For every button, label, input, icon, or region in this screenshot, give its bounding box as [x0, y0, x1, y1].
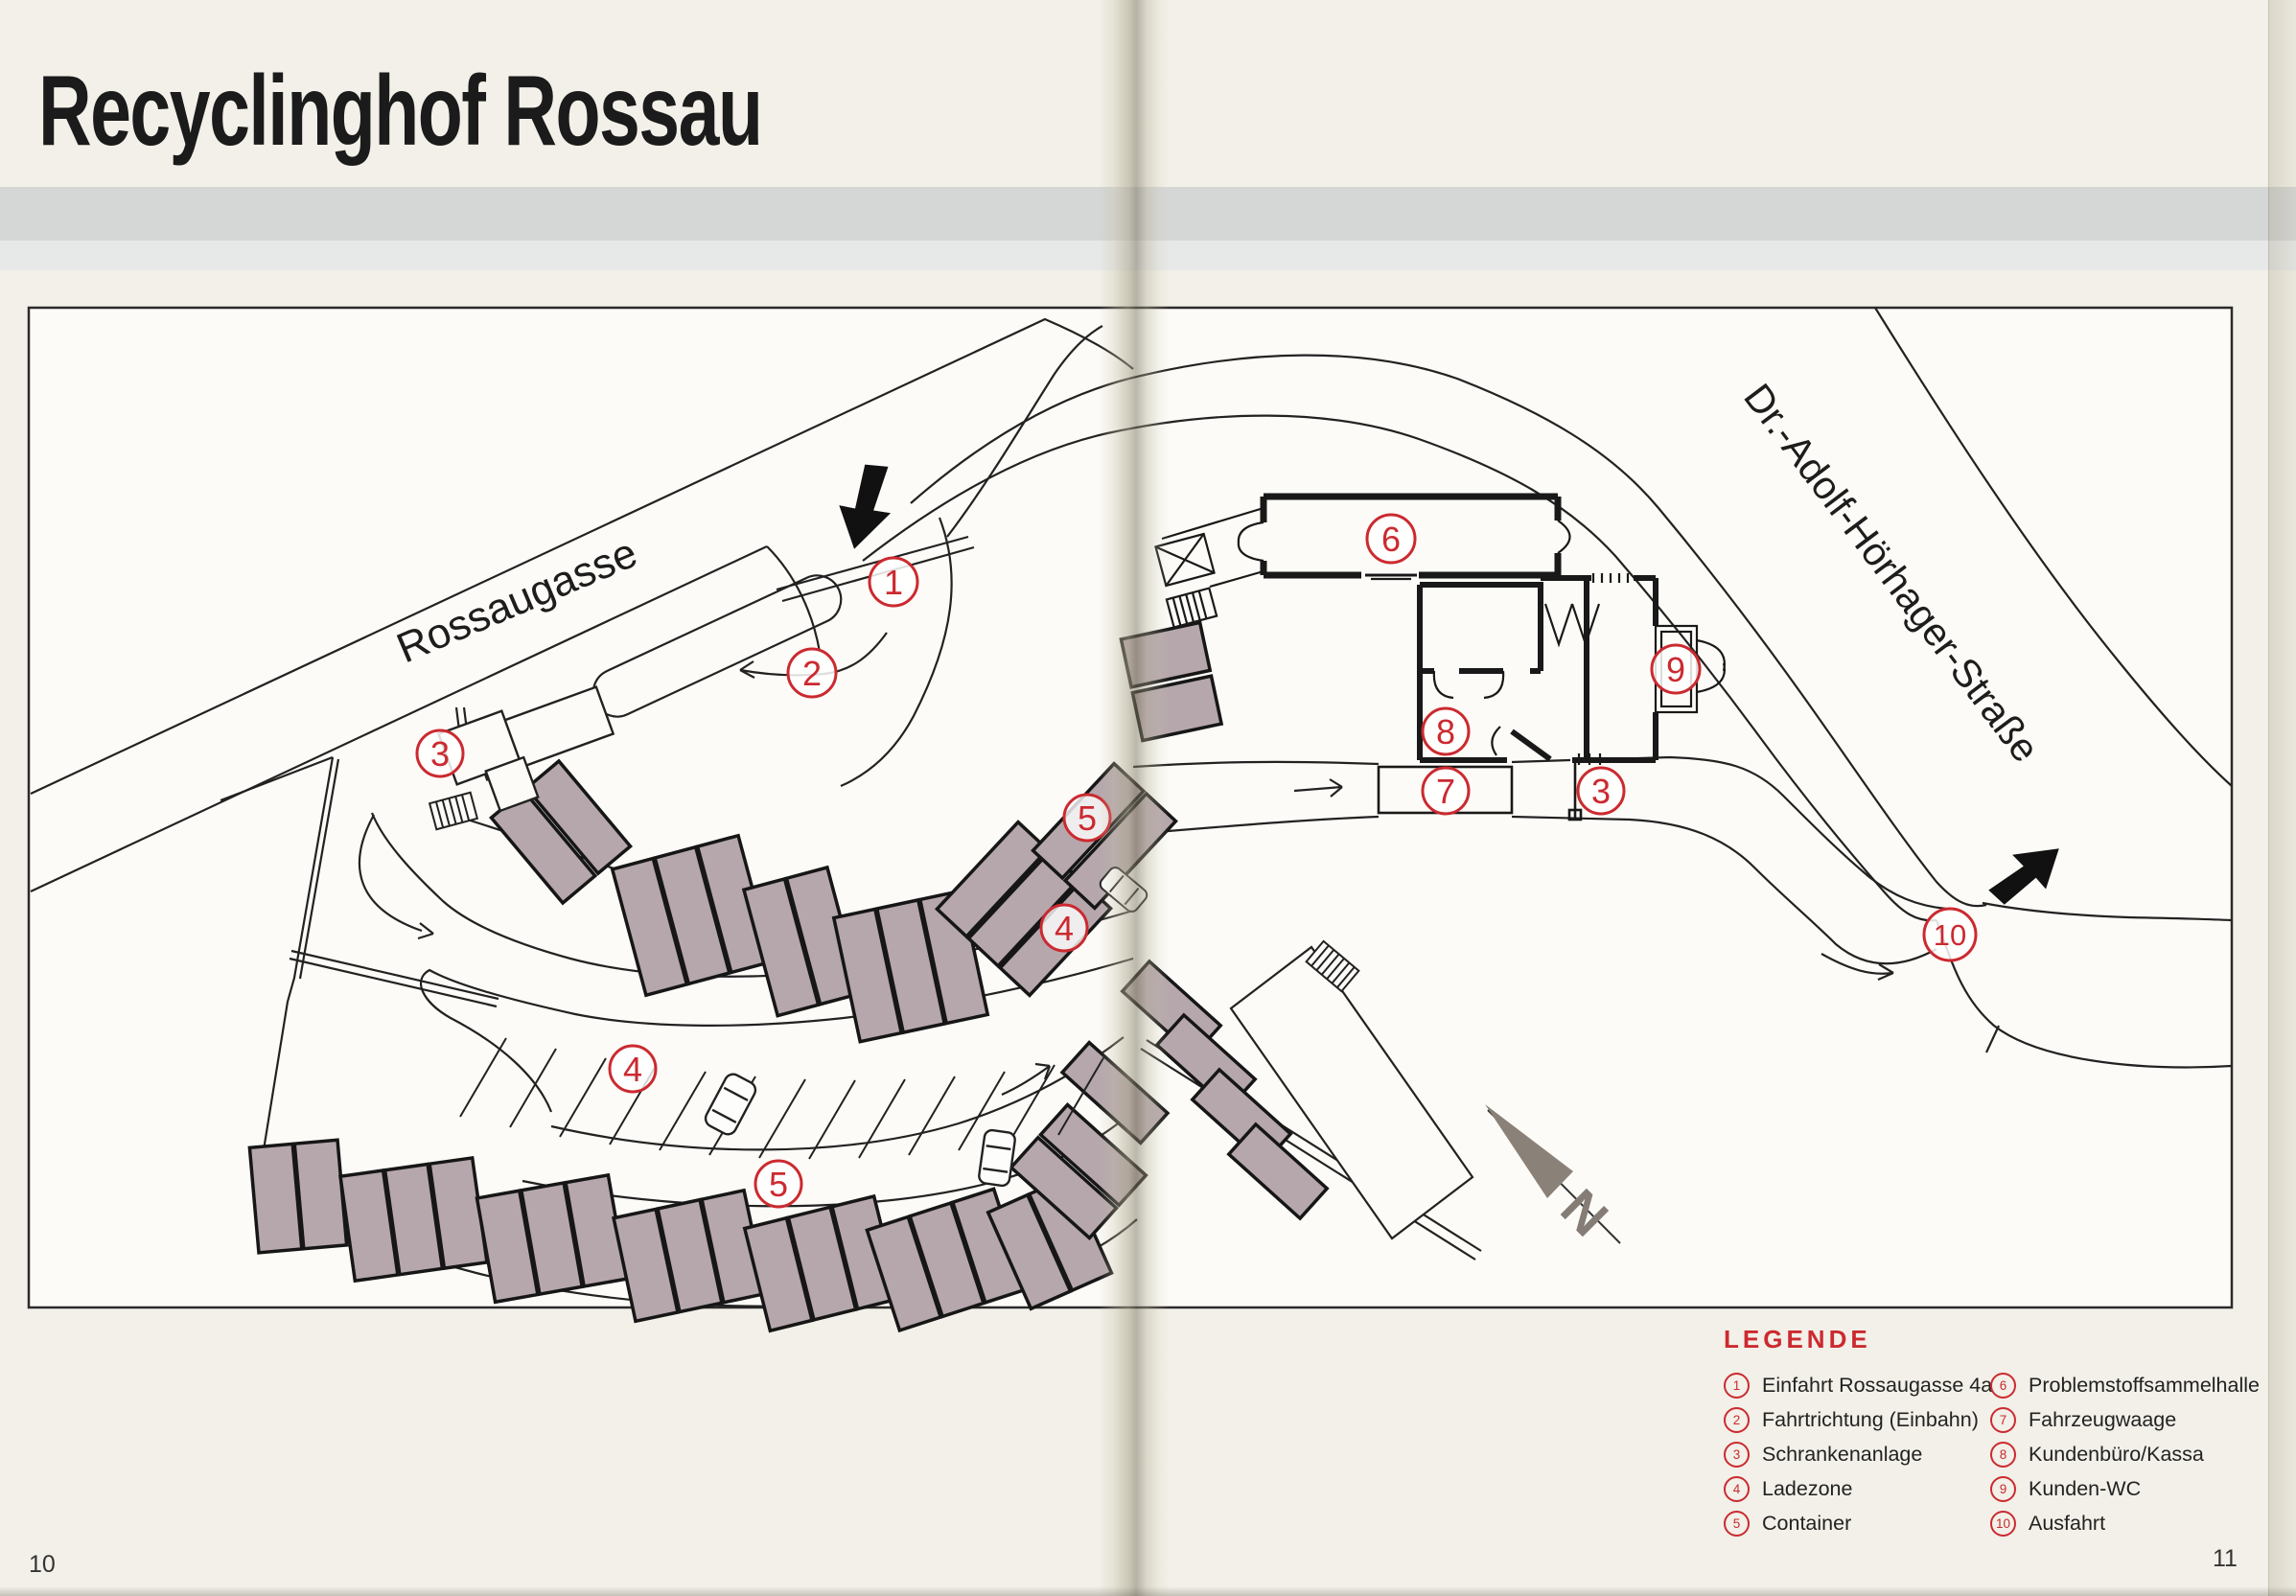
legend-item-label: Problemstoffsammelhalle — [2029, 1374, 2260, 1398]
legend-item-8: 8Kundenbüro/Kassa — [1990, 1437, 2261, 1471]
legend-item-label: Ausfahrt — [2029, 1512, 2105, 1536]
legend-number-circle: 10 — [1990, 1511, 2016, 1537]
legend-number-circle: 3 — [1724, 1442, 1750, 1468]
legend-item-label: Schrankenanlage — [1762, 1443, 1922, 1467]
legend-item-5: 5Container — [1724, 1506, 1990, 1540]
marker-3b: 3 — [1578, 768, 1624, 814]
svg-text:9: 9 — [1666, 650, 1685, 689]
legend-item-1: 1Einfahrt Rossaugasse 4a — [1724, 1368, 1990, 1402]
marker-4a: 4 — [1041, 905, 1087, 951]
marker-4b: 4 — [610, 1046, 656, 1092]
svg-text:4: 4 — [623, 1050, 642, 1089]
marker-7: 7 — [1423, 768, 1469, 814]
page-number-left: 10 — [29, 1551, 56, 1579]
marker-3a: 3 — [417, 730, 463, 776]
legend-column-2: 6Problemstoffsammelhalle 7Fahrzeugwaage … — [1990, 1368, 2261, 1540]
legend-item-label: Container — [1762, 1512, 1851, 1536]
legend-item-10: 10Ausfahrt — [1990, 1506, 2261, 1540]
legend-number-circle: 8 — [1990, 1442, 2016, 1468]
legend-number-circle: 5 — [1724, 1511, 1750, 1537]
legend-item-label: Einfahrt Rossaugasse 4a — [1762, 1374, 1992, 1398]
legend-number-circle: 1 — [1724, 1373, 1750, 1399]
svg-text:2: 2 — [802, 654, 822, 693]
legend-item-7: 7Fahrzeugwaage — [1990, 1402, 2261, 1437]
marker-8: 8 — [1423, 708, 1469, 754]
marker-1: 1 — [870, 558, 917, 606]
svg-text:5: 5 — [769, 1165, 788, 1204]
marker-2: 2 — [788, 649, 836, 697]
svg-text:4: 4 — [1055, 909, 1074, 948]
marker-10: 10 — [1924, 909, 1976, 960]
legend-item-label: Fahrtrichtung (Einbahn) — [1762, 1408, 1979, 1432]
legend: LEGENDE 1Einfahrt Rossaugasse 4a 2Fahrtr… — [1724, 1325, 2261, 1540]
marker-9: 9 — [1652, 645, 1700, 693]
legend-number-circle: 7 — [1990, 1407, 2016, 1433]
legend-number-circle: 4 — [1724, 1476, 1750, 1502]
legend-item-label: Ladezone — [1762, 1477, 1852, 1501]
legend-heading: LEGENDE — [1724, 1325, 2261, 1354]
page-number-right: 11 — [2213, 1545, 2238, 1573]
svg-text:8: 8 — [1436, 712, 1455, 752]
marker-5b: 5 — [755, 1161, 801, 1207]
svg-text:3: 3 — [1591, 772, 1611, 811]
legend-item-6: 6Problemstoffsammelhalle — [1990, 1368, 2261, 1402]
legend-item-label: Kundenbüro/Kassa — [2029, 1443, 2204, 1467]
svg-text:7: 7 — [1436, 772, 1455, 811]
legend-number-circle: 9 — [1990, 1476, 2016, 1502]
legend-item-label: Kunden-WC — [2029, 1477, 2141, 1501]
legend-item-4: 4Ladezone — [1724, 1471, 1990, 1506]
legend-item-2: 2Fahrtrichtung (Einbahn) — [1724, 1402, 1990, 1437]
legend-number-circle: 2 — [1724, 1407, 1750, 1433]
svg-text:10: 10 — [1934, 918, 1966, 952]
legend-item-3: 3Schrankenanlage — [1724, 1437, 1990, 1471]
svg-text:3: 3 — [430, 734, 450, 774]
svg-text:6: 6 — [1381, 520, 1401, 559]
svg-text:5: 5 — [1078, 798, 1097, 838]
legend-item-label: Fahrzeugwaage — [2029, 1408, 2176, 1432]
svg-text:1: 1 — [884, 563, 903, 602]
marker-5a: 5 — [1064, 795, 1110, 841]
legend-column-1: 1Einfahrt Rossaugasse 4a 2Fahrtrichtung … — [1724, 1368, 1990, 1540]
legend-columns: 1Einfahrt Rossaugasse 4a 2Fahrtrichtung … — [1724, 1368, 2261, 1540]
legend-item-9: 9Kunden-WC — [1990, 1471, 2261, 1506]
legend-number-circle: 6 — [1990, 1373, 2016, 1399]
marker-6: 6 — [1367, 515, 1415, 563]
